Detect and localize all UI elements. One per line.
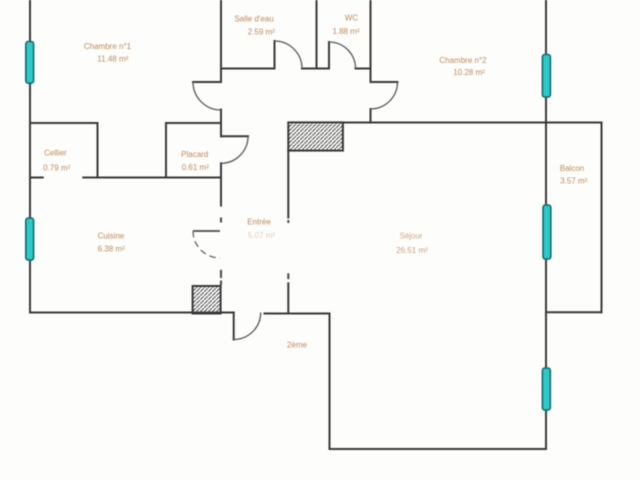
svg-text:Chambre n°2: Chambre n°2 — [439, 56, 487, 65]
svg-text:6.38 m²: 6.38 m² — [98, 245, 125, 254]
svg-text:3.57 m²: 3.57 m² — [560, 177, 587, 186]
svg-text:Salle d'eau: Salle d'eau — [234, 15, 273, 24]
svg-text:Placard: Placard — [181, 150, 208, 159]
svg-text:Séjour: Séjour — [399, 232, 422, 241]
svg-text:26.51 m²: 26.51 m² — [396, 246, 428, 255]
svg-text:2ème: 2ème — [287, 341, 308, 350]
svg-text:10.28 m²: 10.28 m² — [453, 68, 485, 77]
svg-text:Cellier: Cellier — [44, 149, 67, 158]
svg-text:2.59 m²: 2.59 m² — [248, 28, 275, 37]
svg-text:Cuisine: Cuisine — [98, 232, 125, 241]
svg-text:0.79 m²: 0.79 m² — [43, 164, 70, 173]
svg-text:0.61 m²: 0.61 m² — [182, 163, 209, 172]
svg-text:Balcon: Balcon — [560, 164, 584, 173]
svg-text:1.88 m²: 1.88 m² — [332, 27, 359, 36]
svg-text:5.07 m²: 5.07 m² — [248, 231, 275, 240]
svg-text:WC: WC — [345, 14, 359, 23]
svg-text:Chambre n°1: Chambre n°1 — [84, 42, 132, 51]
svg-text:Entrée: Entrée — [247, 218, 271, 227]
svg-text:11.48 m²: 11.48 m² — [97, 55, 128, 64]
